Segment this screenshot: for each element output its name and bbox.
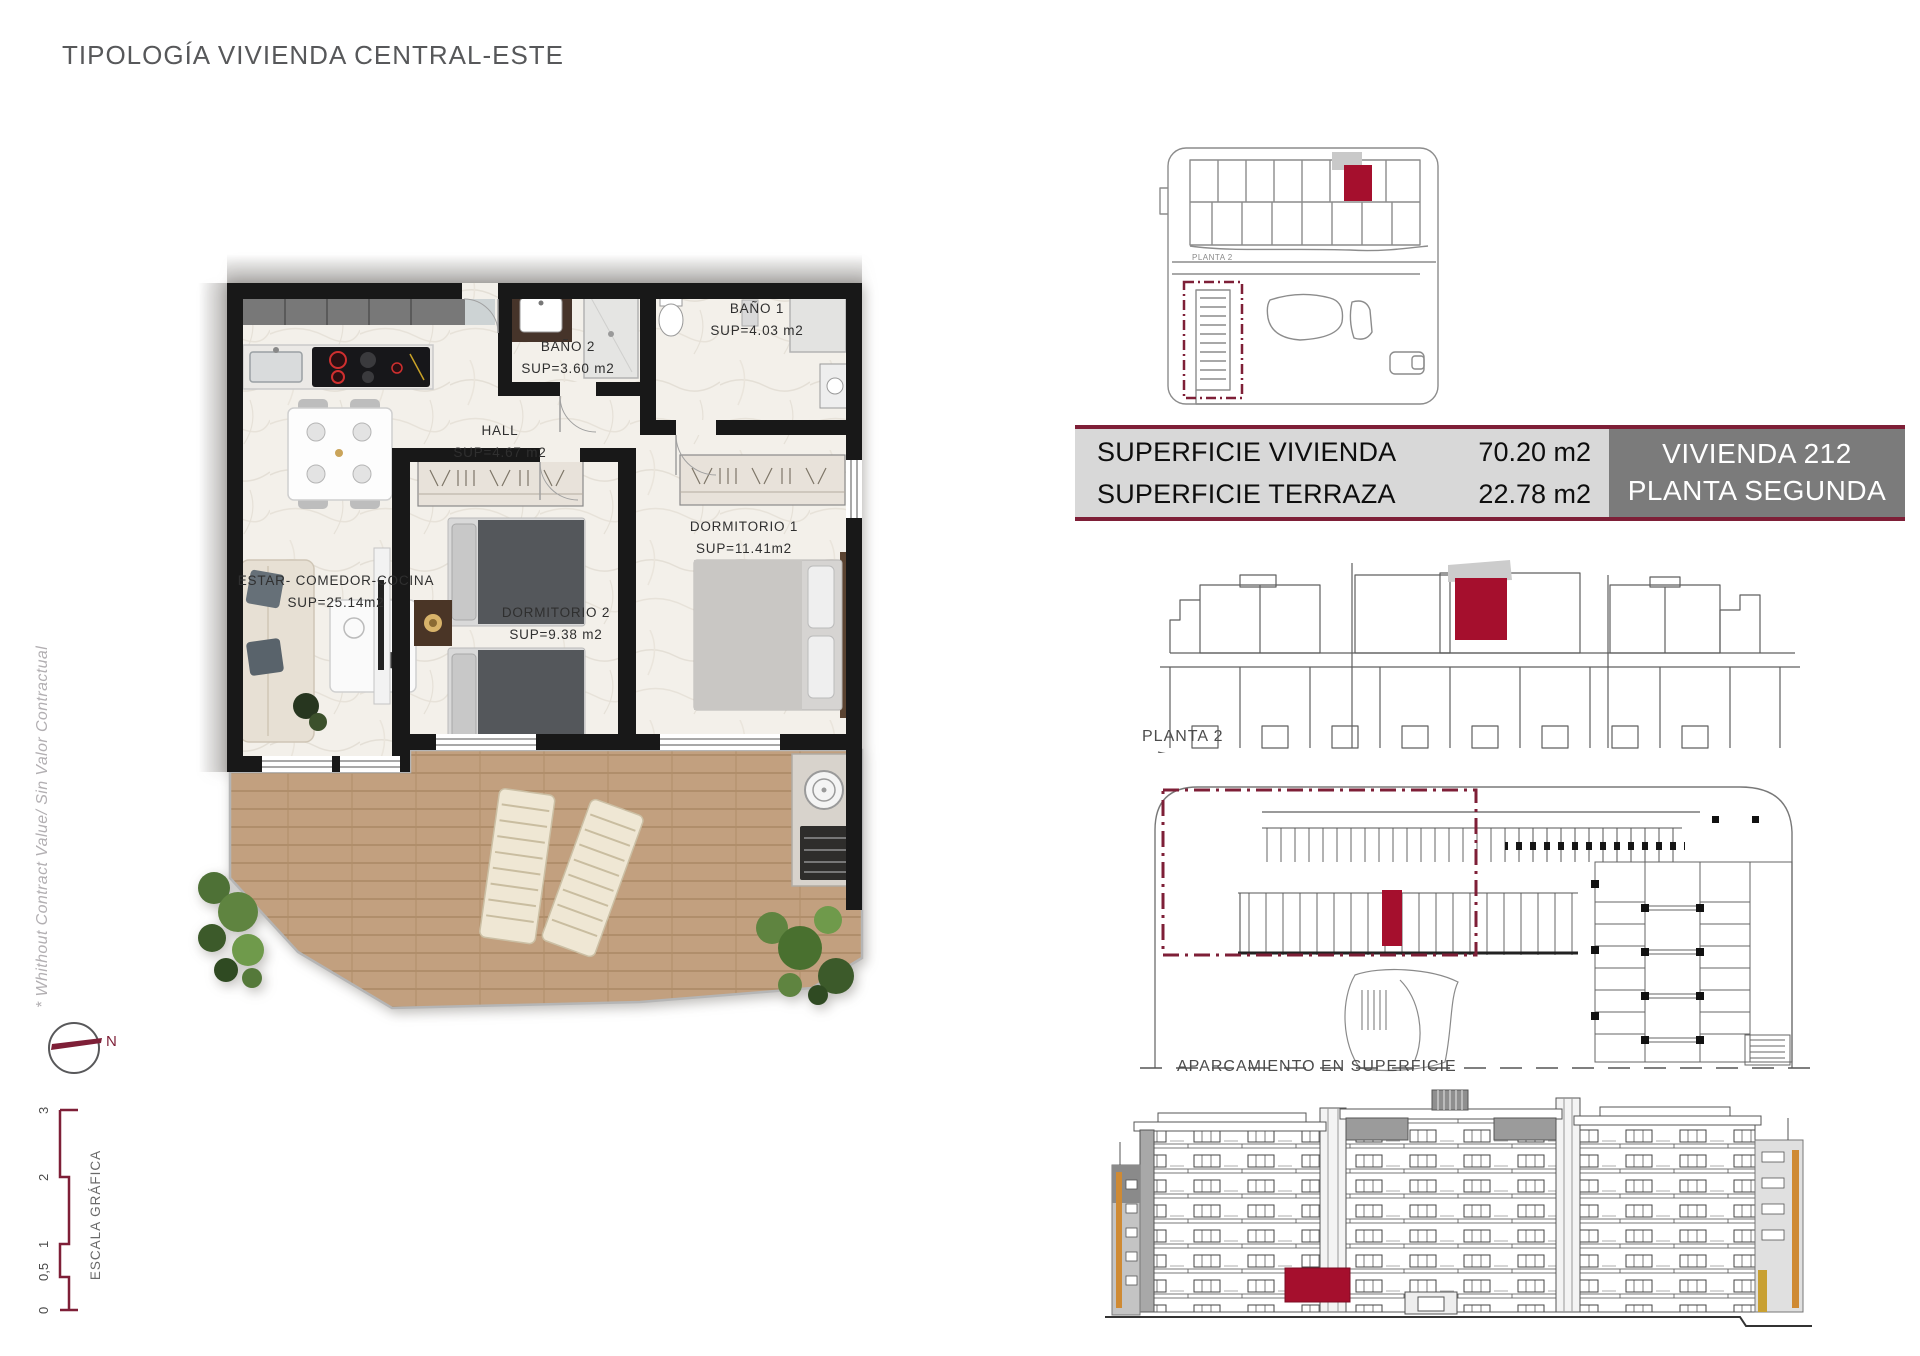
wardrobe-dorm2 (418, 458, 583, 506)
compass-north-label: N (106, 1033, 117, 1050)
unit-floor: PLANTA SEGUNDA (1628, 476, 1887, 507)
summary-row: SUPERFICIE TERRAZA 22.78 m2 (1097, 475, 1591, 513)
terrace-deck (230, 750, 862, 1008)
elevation-ground-line (1105, 1317, 1812, 1326)
summary-label: SUPERFICIE VIVIENDA (1097, 437, 1415, 468)
plan-sheet: TIPOLOGÍA VIVIENDA CENTRAL-ESTE * Whitho… (0, 0, 1920, 1356)
room-name: BAÑO 1 (627, 298, 887, 320)
parking-row-middle (1238, 893, 1578, 955)
room-label-dormitorio1: DORMITORIO 1 SUP=11.41m2 (614, 516, 874, 560)
scale-tick: 0,5 (36, 1263, 51, 1281)
parking-caption: APARCAMIENTO EN SUPERFICIE (1177, 1058, 1457, 1076)
summary-row: SUPERFICIE VIVIENDA 70.20 m2 (1097, 433, 1591, 471)
planta2-highlighted-unit (1455, 578, 1507, 640)
planta2-keyplan-drawing (1150, 558, 1810, 753)
kitchen-cabinets (243, 299, 495, 325)
building-elevation-drawing (1102, 1085, 1817, 1350)
scale-tick: 2 (36, 1174, 51, 1181)
room-name: HALL (370, 420, 630, 442)
keyplan-highlighted-unit (1344, 165, 1372, 201)
kitchen-counter (243, 345, 433, 389)
summary-value: 70.20 m2 (1451, 437, 1591, 468)
room-area: SUP=9.38 m2 (426, 624, 686, 646)
room-label-hall: HALL SUP=4.67 m2 (370, 420, 630, 464)
site-keyplan-drawing: PLANTA 2 (1148, 132, 1458, 422)
planta2-caption: PLANTA 2 (1142, 728, 1224, 746)
wardrobe-dorm1 (680, 455, 845, 505)
room-area: SUP=25.14m2 (206, 592, 466, 614)
keyplan-parking-dashed-outline (1184, 282, 1242, 398)
elevation-highlighted-unit (1285, 1268, 1350, 1302)
scale-tick: 0 (36, 1307, 51, 1314)
surface-summary-bar: SUPERFICIE VIVIENDA 70.20 m2 SUPERFICIE … (1075, 425, 1905, 521)
scale-bar-title: ESCALA GRÁFICA (88, 1150, 103, 1280)
room-label-estar-comedor-cocina: ESTAR- COMEDOR-COCINA SUP=25.14m2 (206, 570, 466, 614)
elevation-left-wing (1112, 1142, 1140, 1315)
elevation-center-block (1346, 1118, 1556, 1312)
parking-highlighted-stall (1382, 890, 1402, 946)
summary-value: 22.78 m2 (1451, 479, 1591, 510)
page-title: TIPOLOGÍA VIVIENDA CENTRAL-ESTE (62, 40, 564, 71)
north-compass: N (40, 1014, 130, 1084)
surface-parking-drawing (1140, 775, 1822, 1080)
bed-single-2 (448, 648, 585, 746)
elevation-right-block (1580, 1125, 1755, 1312)
graphic-scale-bar: 3 2 1 0,5 0 ESCALA GRÁFICA (36, 1100, 116, 1325)
keyplan-floor-label: PLANTA 2 (1192, 253, 1233, 262)
elevation-right-wing (1755, 1118, 1803, 1312)
room-name: BAÑO 2 (438, 336, 698, 358)
unit-identifier-panel: VIVIENDA 212 PLANTA SEGUNDA (1609, 429, 1905, 517)
room-area: SUP=11.41m2 (614, 538, 874, 560)
scale-tick: 3 (36, 1107, 51, 1114)
room-label-bano2: BAÑO 2 SUP=3.60 m2 (438, 336, 698, 380)
room-area: SUP=3.60 m2 (438, 358, 698, 380)
unit-name: VIVIENDA 212 (1662, 439, 1852, 470)
scale-bar-line (60, 1110, 78, 1310)
summary-label: SUPERFICIE TERRAZA (1097, 479, 1415, 510)
surface-summary-values: SUPERFICIE VIVIENDA 70.20 m2 SUPERFICIE … (1075, 429, 1609, 517)
disclaimer-vertical-note: * Whithout Contract Value/ Sin Valor Con… (34, 576, 52, 1008)
room-name: DORMITORIO 1 (614, 516, 874, 538)
bed-double (694, 552, 858, 718)
room-name: ESTAR- COMEDOR-COCINA (206, 570, 466, 592)
scale-tick: 1 (36, 1241, 51, 1248)
room-area: SUP=4.67 m2 (370, 442, 630, 464)
